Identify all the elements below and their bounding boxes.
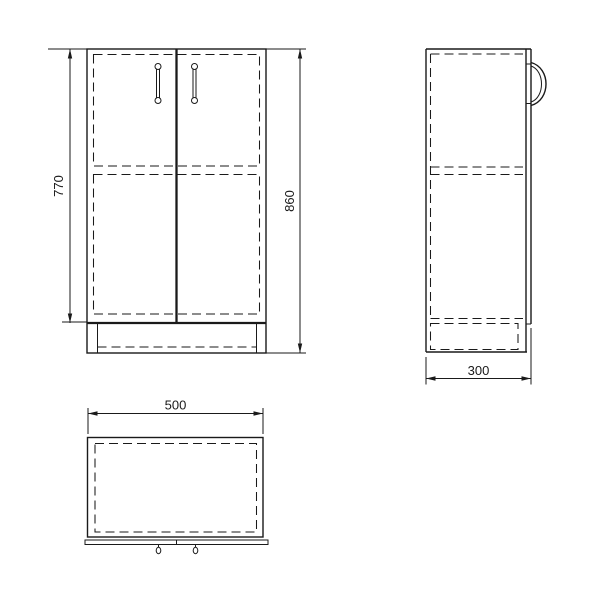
dimension-total-height: 860 [282,49,302,353]
front-left-door-handle [155,64,161,104]
side-view: 300 [426,49,546,385]
side-handle [526,63,547,106]
top-carcass-outline [88,438,264,538]
dimension-depth: 300 [426,328,531,385]
depth-label: 300 [468,363,490,378]
total-height-label: 860 [282,190,297,212]
front-right-door-handle [192,64,198,104]
width-label: 500 [165,398,187,413]
top-hidden-inner-outline [95,444,257,533]
top-right-handle [193,545,198,554]
front-view: 770 860 [48,49,306,353]
door-height-label: 770 [51,175,66,197]
top-left-handle [156,545,161,554]
dimension-width: 500 [88,398,263,435]
dimension-door-height: 770 [51,49,87,323]
top-view: 500 [85,398,268,554]
side-hidden-plinth [431,324,519,350]
cabinet-technical-drawing: 770 860 [0,0,600,600]
drawing-svg: 770 860 [0,0,600,600]
